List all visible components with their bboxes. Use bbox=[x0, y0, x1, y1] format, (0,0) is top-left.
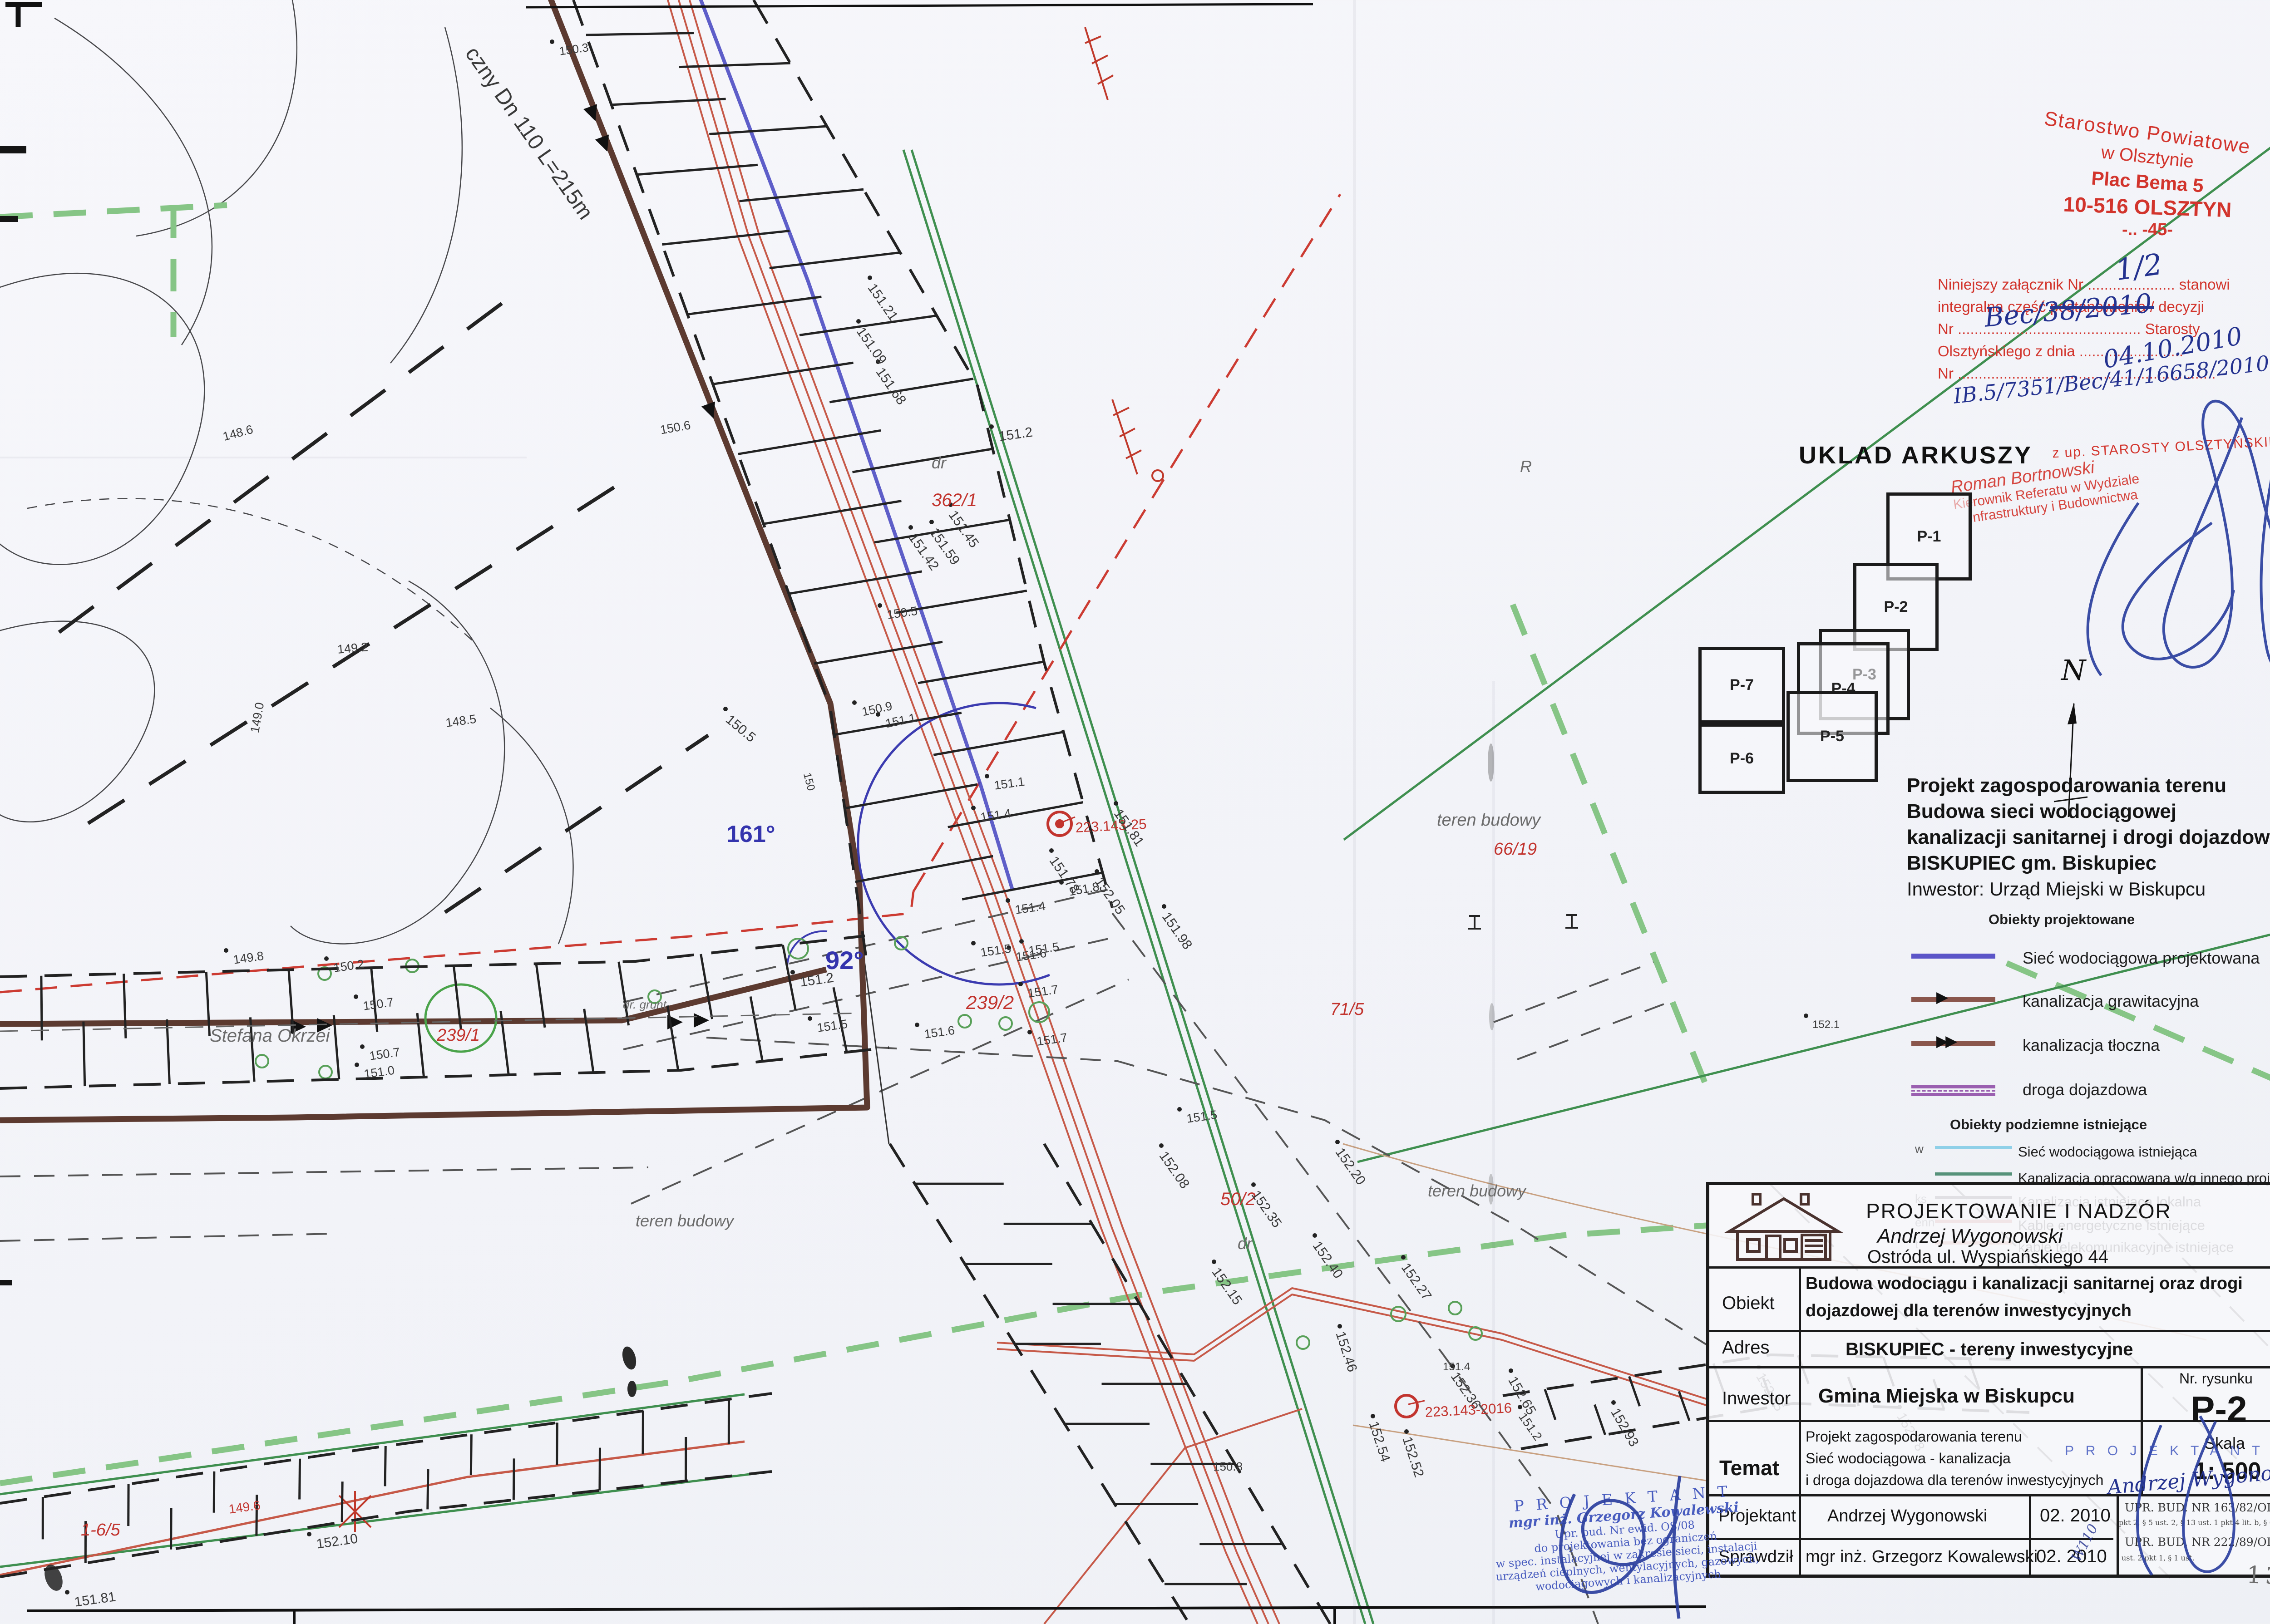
pen-signatures bbox=[0, 0, 2270, 1624]
handwritten-attachment-nr: 1/2 bbox=[2113, 248, 2164, 288]
spread-blue-caps: P R O J E K T A N T bbox=[2065, 1443, 2264, 1459]
pencil-page-number: 136 bbox=[2246, 1561, 2270, 1591]
scanned-site-plan: { "colors":{"red_stamp":"#d2342c","pen_b… bbox=[0, 0, 2270, 1624]
